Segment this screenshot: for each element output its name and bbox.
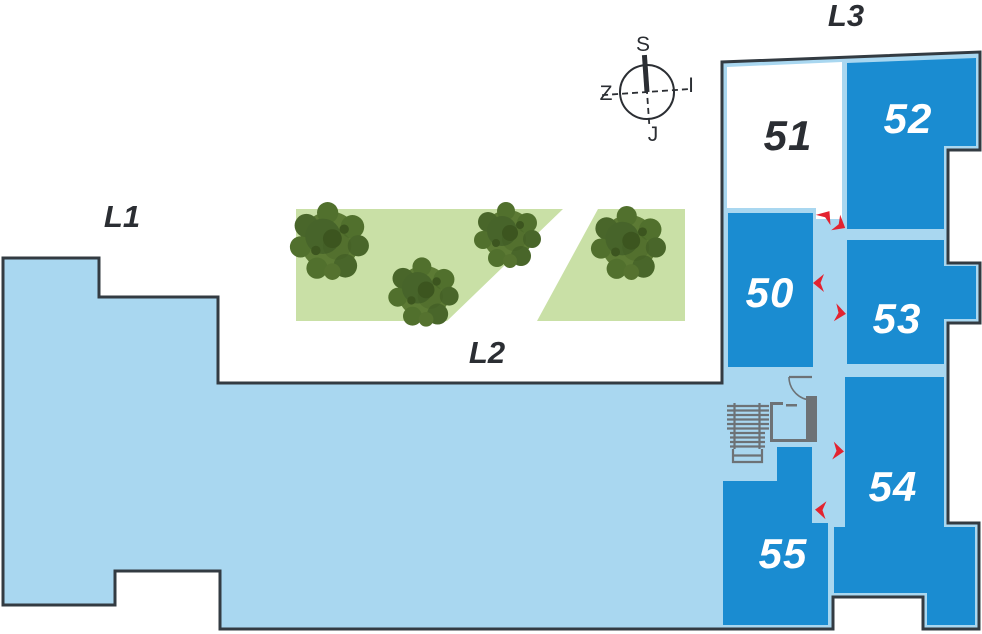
label-l3: L3 — [828, 0, 864, 33]
unit-52-label: 52 — [884, 95, 933, 142]
floor-plan-canvas: 50 51 52 53 54 55 L1 L2 L3 S Z I J — [0, 0, 982, 634]
label-l2: L2 — [469, 335, 505, 370]
unit-55-label: 55 — [759, 530, 808, 577]
unit-54-label: 54 — [869, 463, 918, 510]
compass-bottom-label: J — [648, 123, 659, 146]
label-l1: L1 — [104, 199, 140, 234]
compass-right-label: I — [688, 74, 694, 97]
unit-52[interactable] — [847, 58, 976, 229]
unit-53-label: 53 — [873, 295, 922, 342]
compass-top-label: S — [636, 33, 650, 56]
unit-50-label: 50 — [746, 269, 795, 316]
unit-51-label: 51 — [764, 112, 813, 159]
compass-left-label: Z — [600, 82, 613, 105]
compass-rose-icon: S Z I J — [600, 33, 695, 146]
